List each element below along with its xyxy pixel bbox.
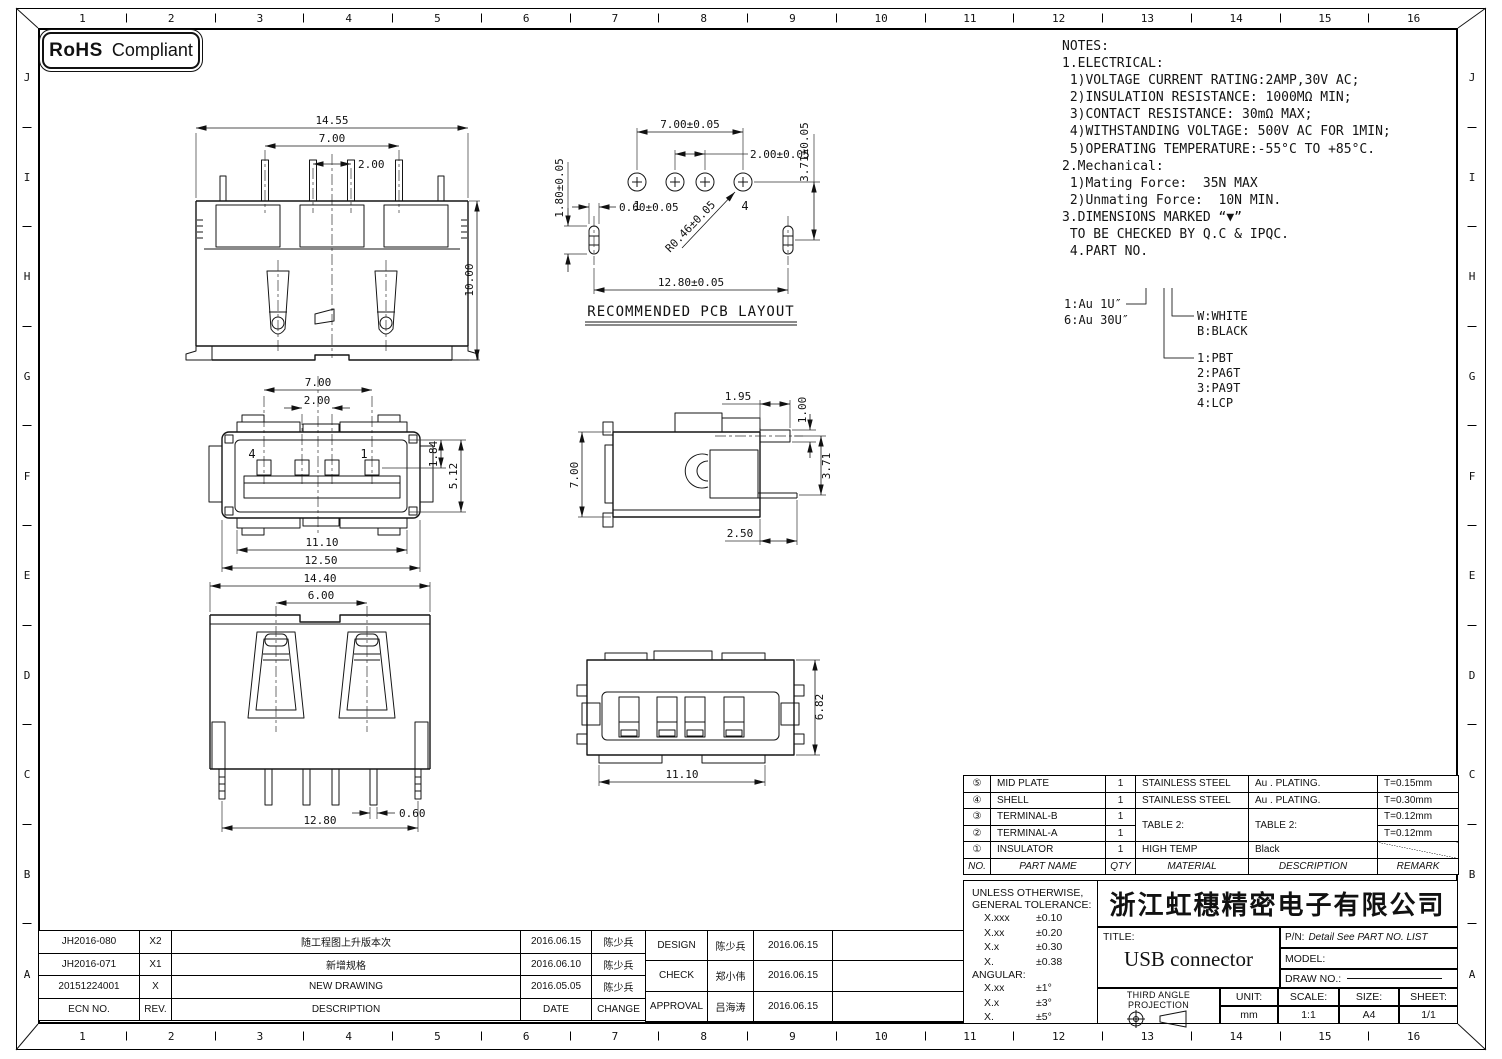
drawing-sheet: 12345678910111213141516 1234567891011121… — [0, 0, 1502, 1059]
dim-label: 14.40 — [303, 572, 336, 585]
pin-number-label: 1 — [360, 447, 367, 461]
bom-qty: 1 — [1106, 809, 1136, 826]
grid-row-label: G — [1458, 327, 1486, 427]
bom-header-material: MATERIAL — [1136, 858, 1249, 875]
note-line: TO BE CHECKED BY Q.C & IPQC. — [1062, 226, 1391, 243]
bom-header-description: DESCRIPTION — [1249, 858, 1378, 875]
note-line: 3.DIMENSIONS MARKED “▼” — [1062, 209, 1391, 226]
pin-number-label: 4 — [248, 447, 255, 461]
dim-label: 7.00 — [305, 376, 332, 389]
grid-ruler-bottom: 12345678910111213141516 — [38, 1024, 1458, 1048]
rev-ecn: JH2016-071 — [39, 953, 140, 976]
plating-option: 6:Au 30U″ — [1064, 313, 1129, 327]
drawing-title: USB connector — [1098, 947, 1279, 972]
grid-col-label: 10 — [837, 8, 926, 28]
dim-label: 0.60 — [399, 807, 426, 820]
pn-value: Detail See PART NO. LIST — [1308, 932, 1427, 943]
tolerance-label: X. — [972, 1010, 1036, 1025]
revision-table: JH2016-080 X2 随工程图上升版本次 2016.06.15 陈少兵 J… — [38, 930, 646, 1021]
rev-change: 陈少兵 — [592, 953, 646, 976]
dim-label: 1.00 — [796, 397, 809, 424]
rev-header-date: DATE — [521, 998, 592, 1021]
note-line: 3)CONTACT RESISTANCE: 30mΩ MAX; — [1062, 106, 1391, 123]
grid-col-label: 2 — [127, 1024, 216, 1048]
bottom-view-drawing: 6.82 11.10 — [562, 610, 842, 794]
bom-no: ⑤ — [964, 776, 991, 793]
table-row: JH2016-071 X1 新增规格 2016.06.10 陈少兵 — [39, 953, 646, 976]
size-label: SIZE: — [1339, 988, 1399, 1006]
grid-col-label: 12 — [1014, 1024, 1103, 1048]
tolerance-value: ±5° — [1036, 1010, 1052, 1025]
note-line: 1)VOLTAGE CURRENT RATING:2AMP,30V AC; — [1062, 72, 1391, 89]
empty-cell — [833, 991, 964, 1021]
bom-header-part: PART NAME — [991, 858, 1106, 875]
grid-col-label: 3 — [216, 8, 305, 28]
material-option: 4:LCP — [1197, 396, 1233, 410]
grid-col-label: 8 — [659, 8, 748, 28]
grid-ruler-right: JIHGFEDCBA — [1458, 28, 1486, 1024]
front-view-geometry — [186, 128, 480, 360]
approval-role: CHECK — [646, 961, 708, 991]
tolerance-value: ±0.30 — [1036, 940, 1062, 955]
grid-row-label: C — [16, 725, 38, 825]
approval-table: DESIGN 陈少兵 2016.06.15 CHECK 郑小伟 2016.06.… — [645, 930, 964, 1022]
grid-col-label: 1 — [38, 1024, 127, 1048]
pin-number-label: 4 — [741, 199, 748, 213]
bom-no: ③ — [964, 809, 991, 826]
bom-part: SHELL — [991, 792, 1106, 809]
draw-no-cell: DRAW NO.: — [1280, 969, 1458, 988]
material-option: 1:PBT — [1197, 351, 1233, 365]
tolerance-value: ±0.10 — [1036, 911, 1062, 926]
bom-description: Au . PLATING. — [1249, 792, 1378, 809]
sheet-label: SHEET: — [1399, 988, 1458, 1006]
bom-material: STAINLESS STEEL — [1136, 776, 1249, 793]
bom-no: ④ — [964, 792, 991, 809]
grid-col-label: 5 — [393, 1024, 482, 1048]
approval-date: 2016.06.15 — [754, 931, 833, 961]
dim-label: 1.84 — [427, 440, 440, 467]
bom-header-qty: QTY — [1106, 858, 1136, 875]
dim-label: 11.10 — [665, 768, 698, 781]
rev-date: 2016.05.05 — [521, 976, 592, 999]
grid-col-label: 5 — [393, 8, 482, 28]
note-line: 2)INSULATION RESISTANCE: 1000MΩ MIN; — [1062, 89, 1391, 106]
mating-face-view-drawing: 7.00 2.00 4 1 1.84 5.12 11.10 12.50 — [192, 372, 484, 580]
grid-row-label: E — [1458, 526, 1486, 626]
title-label: TITLE: — [1098, 928, 1279, 943]
grid-col-label: 10 — [837, 1024, 926, 1048]
bom-material: HIGH TEMP — [1136, 842, 1249, 859]
pn-label: P/N: — [1285, 932, 1304, 943]
bom-part: TERMINAL-A — [991, 825, 1106, 842]
grid-col-label: 16 — [1369, 1024, 1458, 1048]
rev-ecn: 20151224001 — [39, 976, 140, 999]
bom-qty: 1 — [1106, 842, 1136, 859]
dim-label: 5.12 — [447, 463, 460, 490]
company-name: 浙江虹穗精密电子有限公司 — [1097, 880, 1458, 927]
empty-cell — [833, 961, 964, 991]
rev-date: 2016.06.15 — [521, 931, 592, 954]
tolerance-value: ±0.20 — [1036, 926, 1062, 941]
grid-ruler-left: JIHGFEDCBA — [16, 28, 38, 1024]
bom-material: STAINLESS STEEL — [1136, 792, 1249, 809]
scale-value: 1:1 — [1278, 1006, 1339, 1024]
bom-part: INSULATOR — [991, 842, 1106, 859]
bom-remark: T=0.12mm — [1378, 809, 1459, 826]
grid-col-label: 1 — [38, 8, 127, 28]
tolerance-block: UNLESS OTHERWISE, GENERAL TOLERANCE: X.x… — [963, 880, 1098, 1024]
approval-date: 2016.06.15 — [754, 991, 833, 1021]
grid-row-label: A — [1458, 924, 1486, 1024]
table-row: ③ TERMINAL-B 1 TABLE 2: TABLE 2: T=0.12m… — [964, 809, 1459, 826]
grid-col-label: 6 — [482, 8, 571, 28]
part-number-tree-lines — [1126, 288, 1194, 358]
grid-col-label: 9 — [748, 8, 837, 28]
model-label: MODEL: — [1285, 953, 1325, 965]
unit-label: UNIT: — [1220, 988, 1278, 1006]
tolerance-value: ±1° — [1036, 981, 1052, 996]
grid-row-label: A — [16, 924, 38, 1024]
sheet-value: 1/1 — [1399, 1006, 1458, 1024]
grid-row-label: I — [1458, 128, 1486, 228]
bottom-view-geometry — [577, 651, 820, 786]
rev-change: 陈少兵 — [592, 931, 646, 954]
grid-ruler-top: 12345678910111213141516 — [38, 8, 1458, 28]
note-line: 1.ELECTRICAL: — [1062, 55, 1391, 72]
grid-col-label: 7 — [571, 8, 660, 28]
rev-header-ecn: ECN NO. — [39, 998, 140, 1021]
dim-label: 6.82 — [813, 694, 826, 721]
grid-row-label: F — [16, 426, 38, 526]
draw-no-label: DRAW NO.: — [1285, 973, 1341, 985]
table-row: 20151224001 X NEW DRAWING 2016.05.05 陈少兵 — [39, 976, 646, 999]
rev-description: 新增规格 — [172, 953, 521, 976]
tolerance-label: X. — [972, 955, 1036, 970]
projection-cell: THIRD ANGLE PROJECTION — [1097, 988, 1220, 1024]
projection-label: THIRD ANGLE PROJECTION — [1098, 989, 1219, 1010]
dim-label: 12.80±0.05 — [658, 276, 724, 289]
tolerance-label: X.x — [972, 996, 1036, 1011]
dim-label: 7.00±0.05 — [660, 118, 720, 131]
note-line: 1)Mating Force: 35N MAX — [1062, 175, 1391, 192]
dim-label: 11.10 — [305, 536, 338, 549]
dim-label: 12.80 — [303, 814, 336, 827]
tolerance-title: GENERAL TOLERANCE: — [972, 899, 1097, 911]
grid-row-label: E — [16, 526, 38, 626]
bom-no: ② — [964, 825, 991, 842]
table-header-row: NO. PART NAME QTY MATERIAL DESCRIPTION R… — [964, 858, 1459, 875]
tolerance-label: X.xxx — [972, 911, 1036, 926]
grid-row-label: H — [1458, 227, 1486, 327]
note-line: 5)OPERATING TEMPERATURE:-55°C TO +85°C. — [1062, 141, 1391, 158]
bom-header-remark: REMARK — [1378, 858, 1459, 875]
rev-header-change: CHANGE — [592, 998, 646, 1021]
tolerance-value: ±3° — [1036, 996, 1052, 1011]
grid-col-label: 13 — [1103, 8, 1192, 28]
dim-label: 1.95 — [725, 390, 752, 403]
bom-qty: 1 — [1106, 825, 1136, 842]
third-angle-projection-icon — [1098, 1010, 1219, 1030]
approval-role: APPROVAL — [646, 991, 708, 1021]
table-row: ⑤ MID PLATE 1 STAINLESS STEEL Au . PLATI… — [964, 776, 1459, 793]
tolerance-title: UNLESS OTHERWISE, — [972, 887, 1097, 899]
rohs-bold-text: RoHS — [49, 40, 103, 62]
grid-col-label: 4 — [304, 1024, 393, 1048]
dim-label: 14.55 — [315, 114, 348, 127]
grid-row-label: F — [1458, 426, 1486, 526]
dim-label: 3.71±0.05 — [798, 122, 811, 182]
side-view-geometry — [578, 400, 826, 545]
grid-col-label: 15 — [1281, 8, 1370, 28]
approval-date: 2016.06.15 — [754, 961, 833, 991]
grid-col-label: 9 — [748, 1024, 837, 1048]
material-option: 3:PA9T — [1197, 381, 1240, 395]
pcb-layout-drawing: 1 4 7.00±0.05 2.00±0.05 3.71±0.05 1.80±0… — [552, 100, 874, 334]
title-cell: TITLE: USB connector — [1097, 927, 1280, 988]
rear-view-drawing: 14.40 6.00 0.60 12.80 — [182, 572, 474, 836]
grid-col-label: 11 — [926, 1024, 1015, 1048]
color-option: B:BLACK — [1197, 324, 1248, 338]
grid-row-label: G — [16, 327, 38, 427]
material-option: 2:PA6T — [1197, 366, 1240, 380]
table-row: APPROVAL 吕海涛 2016.06.15 — [646, 991, 964, 1021]
grid-row-label: J — [1458, 28, 1486, 128]
approval-name: 吕海涛 — [708, 991, 754, 1021]
size-value: A4 — [1339, 1006, 1399, 1024]
bom-part: MID PLATE — [991, 776, 1106, 793]
bom-material: TABLE 2: — [1136, 809, 1249, 842]
rev-description: NEW DRAWING — [172, 976, 521, 999]
dim-label: 7.00 — [568, 462, 581, 489]
grid-col-label: 11 — [926, 8, 1015, 28]
grid-col-label: 12 — [1014, 8, 1103, 28]
bom-remark: T=0.12mm — [1378, 825, 1459, 842]
rev-header-rev: REV. — [140, 998, 172, 1021]
bom-description: TABLE 2: — [1249, 809, 1378, 842]
grid-col-label: 2 — [127, 8, 216, 28]
bom-header-no: NO. — [964, 858, 991, 875]
angular-label: ANGULAR: — [972, 969, 1097, 981]
grid-row-label: D — [16, 626, 38, 726]
empty-cell — [833, 931, 964, 961]
table-row: ① INSULATOR 1 HIGH TEMP Black — [964, 842, 1459, 859]
rev-rev: X2 — [140, 931, 172, 954]
rev-rev: X — [140, 976, 172, 999]
grid-row-label: C — [1458, 725, 1486, 825]
bom-table: ⑤ MID PLATE 1 STAINLESS STEEL Au . PLATI… — [963, 775, 1459, 875]
part-number-tree: 1:Au 1U″ 6:Au 30U″ W:WHITE B:BLACK 1:PBT… — [1058, 280, 1330, 430]
rev-date: 2016.06.10 — [521, 953, 592, 976]
grid-row-label: H — [16, 227, 38, 327]
approval-name: 郑小伟 — [708, 961, 754, 991]
pcb-layout-title: RECOMMENDED PCB LAYOUT — [587, 304, 794, 320]
note-line: NOTES: — [1062, 38, 1391, 55]
grid-col-label: 4 — [304, 8, 393, 28]
grid-row-label: B — [1458, 825, 1486, 925]
note-line: 4)WITHSTANDING VOLTAGE: 500V AC FOR 1MIN… — [1062, 123, 1391, 140]
side-view-drawing: 7.00 1.95 1.00 3.71 2.50 — [570, 382, 836, 560]
bom-remark: T=0.30mm — [1378, 792, 1459, 809]
dim-label: 2.50 — [727, 527, 754, 540]
table-row: JH2016-080 X2 随工程图上升版本次 2016.06.15 陈少兵 — [39, 931, 646, 954]
scale-label: SCALE: — [1278, 988, 1339, 1006]
bom-qty: 1 — [1106, 776, 1136, 793]
grid-col-label: 14 — [1192, 8, 1281, 28]
table-header-row: ECN NO. REV. DESCRIPTION DATE CHANGE — [39, 998, 646, 1021]
bom-remark: T=0.15mm — [1378, 776, 1459, 793]
rear-view-geometry — [210, 582, 430, 832]
grid-col-label: 6 — [482, 1024, 571, 1048]
grid-col-label: 16 — [1369, 8, 1458, 28]
note-line: 2)Unmating Force: 10N MIN. — [1062, 192, 1391, 209]
grid-col-label: 8 — [659, 1024, 748, 1048]
bom-qty: 1 — [1106, 792, 1136, 809]
bom-no: ① — [964, 842, 991, 859]
dim-label: 1.80±0.05 — [553, 158, 566, 218]
rohs-badge: RoHS Compliant — [42, 32, 200, 69]
rev-description: 随工程图上升版本次 — [172, 931, 521, 954]
bom-description: Au . PLATING. — [1249, 776, 1378, 793]
grid-col-label: 15 — [1281, 1024, 1370, 1048]
note-line: 4.PART NO. — [1062, 243, 1391, 260]
color-option: W:WHITE — [1197, 309, 1248, 323]
part-number-cell: P/N: Detail See PART NO. LIST — [1280, 927, 1458, 948]
grid-col-label: 3 — [216, 1024, 305, 1048]
rev-change: 陈少兵 — [592, 976, 646, 999]
dim-label: 3.71 — [820, 453, 833, 480]
rev-ecn: JH2016-080 — [39, 931, 140, 954]
front-view-drawing: 14.55 7.00 2.00 10.00 — [182, 108, 484, 376]
rev-rev: X1 — [140, 953, 172, 976]
bom-description: Black — [1249, 842, 1378, 859]
unit-value: mm — [1220, 1006, 1278, 1024]
draw-no-blank-line — [1347, 978, 1442, 979]
approval-name: 陈少兵 — [708, 931, 754, 961]
dim-label: 7.00 — [319, 132, 346, 145]
dim-label: 2.00 — [304, 394, 331, 407]
grid-row-label: J — [16, 28, 38, 128]
grid-row-label: B — [16, 825, 38, 925]
dim-label: 10.00 — [463, 263, 476, 296]
tolerance-value: ±0.38 — [1036, 955, 1062, 970]
grid-col-label: 7 — [571, 1024, 660, 1048]
table-row: DESIGN 陈少兵 2016.06.15 — [646, 931, 964, 961]
table-row: ④ SHELL 1 STAINLESS STEEL Au . PLATING. … — [964, 792, 1459, 809]
model-cell: MODEL: — [1280, 948, 1458, 969]
note-line: 2.Mechanical: — [1062, 158, 1391, 175]
approval-role: DESIGN — [646, 931, 708, 961]
grid-row-label: I — [16, 128, 38, 228]
rohs-rest-text: Compliant — [112, 40, 193, 61]
rev-header-description: DESCRIPTION — [172, 998, 521, 1021]
plating-option: 1:Au 1U″ — [1064, 297, 1122, 311]
notes-block: NOTES:1.ELECTRICAL: 1)VOLTAGE CURRENT RA… — [1062, 38, 1391, 260]
dim-label: 6.00 — [308, 589, 335, 602]
tolerance-label: X.xx — [972, 981, 1036, 996]
bom-remark-slash — [1378, 842, 1459, 859]
dim-label: 12.50 — [304, 554, 337, 567]
dim-label: 0.60±0.05 — [619, 201, 679, 214]
bom-part: TERMINAL-B — [991, 809, 1106, 826]
table-row: CHECK 郑小伟 2016.06.15 — [646, 961, 964, 991]
dim-label: 2.00 — [358, 158, 385, 171]
tolerance-label: X.x — [972, 940, 1036, 955]
grid-row-label: D — [1458, 626, 1486, 726]
tolerance-label: X.xx — [972, 926, 1036, 941]
